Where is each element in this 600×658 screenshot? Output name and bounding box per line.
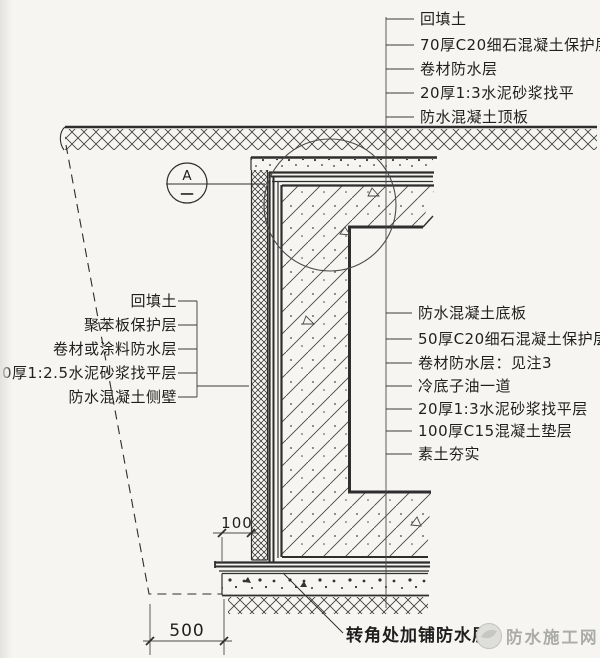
label-top-protection: 70厚C20细石混凝土保护层 — [420, 36, 600, 54]
left-label-bracket — [178, 301, 249, 397]
detail-mark: A 一 — [166, 163, 265, 203]
bottom-slab-layers — [215, 557, 430, 614]
label-top-screed: 20厚1:3水泥砂浆找平 — [420, 84, 574, 102]
detail-mark-letter: A — [182, 168, 192, 184]
label-cushion: 100厚C15混凝土垫层 — [418, 422, 572, 440]
label-backfill-top: 回填土 — [420, 10, 467, 28]
top-slab-layers — [251, 157, 437, 186]
label-wall-membrane: 卷材或涂料防水层 — [53, 340, 177, 358]
dimension-500-value: 500 — [169, 621, 204, 641]
label-wall-concrete: 防水混凝土侧壁 — [68, 388, 177, 406]
label-top-slab: 防水混凝土顶板 — [420, 108, 529, 126]
label-bottom-screed: 20厚1:3水泥砂浆找平层 — [418, 400, 588, 418]
label-backfill-left: 回填土 — [130, 292, 177, 310]
labels-top: 回填土 70厚C20细石混凝土保护层 卷材防水层 20厚1:3水泥砂浆找平 防水… — [420, 10, 600, 126]
label-top-membrane: 卷材防水层 — [420, 60, 498, 78]
detail-mark-number: 一 — [180, 188, 193, 203]
rammed-earth-hatch — [228, 597, 428, 614]
construction-detail-page: A 一 回填土 70厚C20细石混凝土保护层 卷材防水层 20厚1:3水泥砂浆找… — [0, 0, 600, 658]
label-cold-primer: 冷底子油一道 — [418, 377, 511, 395]
right-label-ticks — [386, 313, 412, 454]
label-wall-screed: 20厚1:2.5水泥砂浆找平层 — [0, 364, 177, 382]
watermark: 防水施工网 — [477, 624, 599, 649]
ground-left-end — [60, 127, 65, 150]
waterproofing-detail-drawing: A 一 回填土 70厚C20细石混凝土保护层 卷材防水层 20厚1:3水泥砂浆找… — [0, 0, 600, 658]
dimension-500: 500 — [143, 599, 232, 655]
label-bottom-membrane: 卷材防水层：见注3 — [418, 354, 552, 372]
label-insulation-board: 聚苯板保护层 — [84, 316, 177, 334]
watermark-text: 防水施工网 — [506, 627, 599, 647]
label-rammed-earth: 素土夯实 — [418, 445, 480, 463]
labels-left: 回填土 聚苯板保护层 卷材或涂料防水层 20厚1:2.5水泥砂浆找平层 防水混凝… — [0, 292, 177, 406]
label-bottom-slab: 防水混凝土底板 — [418, 304, 527, 322]
top-label-ticks — [386, 19, 414, 117]
wall-layers — [252, 170, 282, 562]
concrete-section-body — [282, 186, 436, 557]
label-corner-reinforcement: 转角处加铺防水层 — [346, 625, 490, 646]
dimension-100-value: 100 — [221, 514, 253, 532]
concrete-cushion-layer — [222, 574, 428, 595]
label-bottom-protection: 50厚C20细石混凝土保护层 — [418, 330, 600, 348]
labels-right: 防水混凝土底板 50厚C20细石混凝土保护层 卷材防水层：见注3 冷底子油一道 … — [418, 304, 600, 463]
scan-edge-shadow — [0, 0, 12, 658]
wall-insulation-board — [252, 170, 268, 560]
